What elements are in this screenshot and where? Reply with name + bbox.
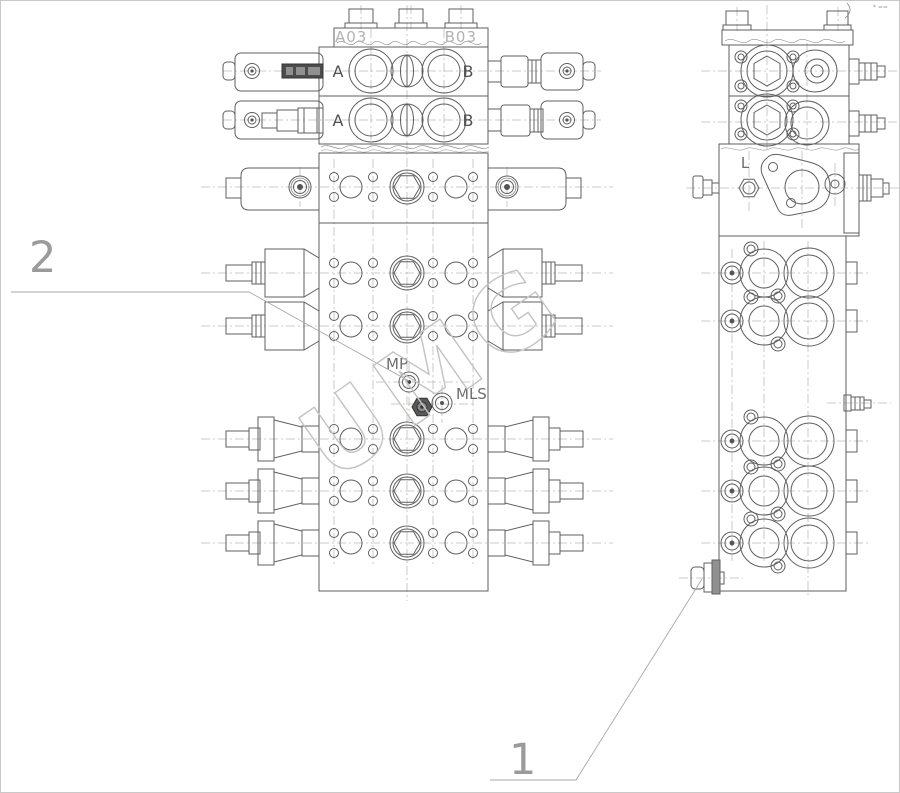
left-test-fitting (693, 176, 719, 198)
side-body (719, 236, 846, 591)
valve-assembly-drawing: 2 1 A03 B03 A B A B MP MLS L * == UMG (1, 1, 900, 793)
side-view (691, 11, 889, 594)
side-inlet-block (693, 144, 889, 236)
corner-mark: * == (873, 4, 888, 11)
port-group (721, 460, 857, 521)
inlet-row (330, 170, 478, 204)
pilot-flange (761, 154, 845, 215)
right-fittings (844, 153, 889, 233)
label-port-a-1: A (333, 62, 344, 81)
callout-2: 2 (29, 233, 56, 283)
label-b03: B03 (445, 28, 477, 46)
callout-1: 1 (509, 735, 536, 785)
port-group (721, 290, 857, 351)
nameplate-badge (282, 64, 323, 78)
technical-drawing-page: 2 1 A03 B03 A B A B MP MLS L * == UMG (0, 0, 900, 793)
port-group (721, 242, 857, 303)
label-port-b-2: B (463, 111, 474, 130)
work-row (330, 526, 478, 560)
label-port-b-1: B (463, 62, 474, 81)
top-bosses (723, 11, 851, 30)
valve-section-1 (223, 47, 595, 96)
label-a03: A03 (335, 28, 367, 46)
port-group (721, 512, 857, 573)
label-l: L (741, 154, 750, 172)
label-port-a-2: A (333, 111, 344, 130)
port-group (721, 410, 857, 471)
